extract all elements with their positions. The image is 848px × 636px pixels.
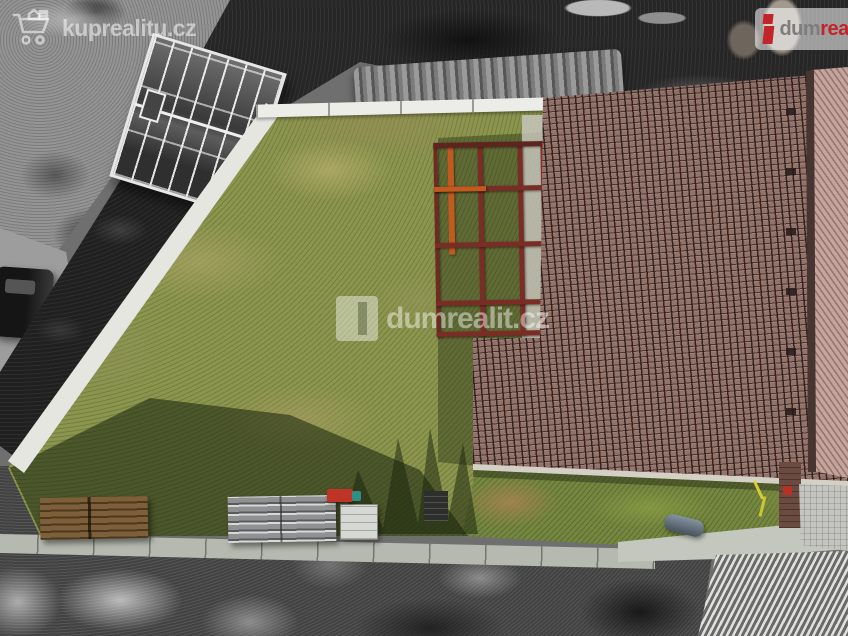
logo-i-stem-cutout [358,311,367,335]
pergola-beam-sunlit [434,186,486,192]
roof-vents [786,108,796,448]
pergola-beam [435,241,547,248]
logo-i-dot-cutout [358,302,367,311]
watermark-text: dumrealit.cz [386,296,549,341]
red-marker [783,486,792,495]
pergola-beam [433,141,545,148]
small-equipment [352,491,361,501]
storage-box [340,504,378,540]
aerial-photo-scene: kuprealitu.cz dumrealit.cz dumrealit [0,0,848,636]
brick-pillar [779,462,801,528]
dark-crate [424,491,448,521]
brand-text-red: realit [820,18,848,41]
pergola-beam-sunlit [447,143,455,255]
logo-i-stem [762,26,774,44]
dumrealit-brand-logo: dumrealit [755,8,848,50]
watermark-kuprealitu: kuprealitu.cz [12,8,196,48]
watermark-dumrealit: dumrealit.cz [336,296,549,341]
brand-text-gray: dum [779,18,820,41]
shopping-cart-icon [12,8,54,48]
watermark-text: kuprealitu.cz [62,15,196,42]
car-windshield [5,279,36,295]
dumrealit-i-icon [760,14,775,44]
pallet-stack [40,496,149,540]
paving-block-stack [228,495,337,543]
logo-i-dot [763,14,774,24]
red-equipment [327,489,353,502]
dumrealit-square-logo-icon [336,296,378,341]
